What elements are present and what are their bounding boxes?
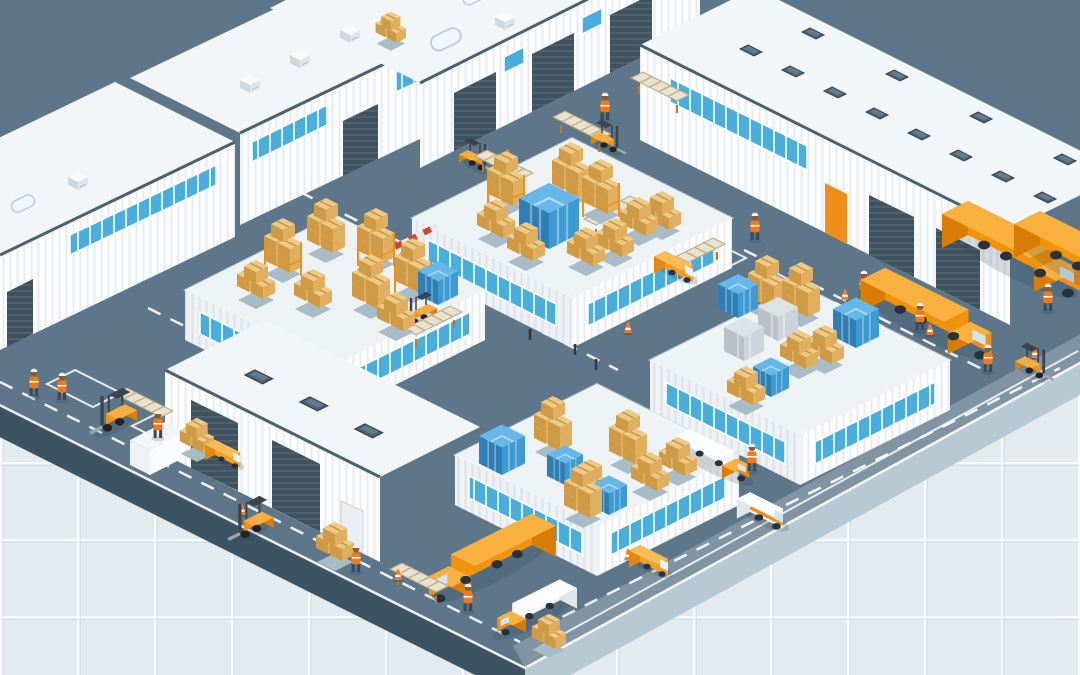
bollard <box>528 329 531 340</box>
scene-illustration: Isometric illustration of a logistics pa… <box>0 0 1080 675</box>
bollard <box>573 344 576 355</box>
bollard <box>594 359 597 370</box>
warehouse-illustration: Isometric illustration of a logistics pa… <box>0 0 1080 675</box>
